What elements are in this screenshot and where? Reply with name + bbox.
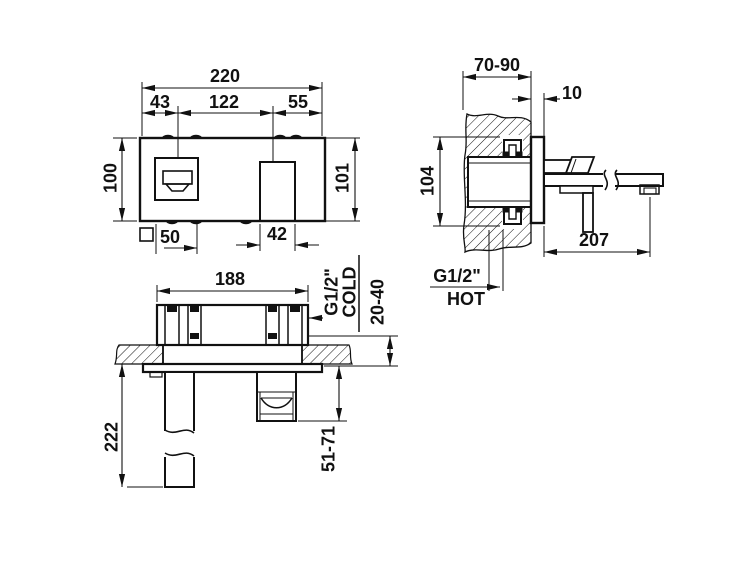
- handle-hub: [560, 186, 593, 193]
- mount-bump: [290, 135, 302, 138]
- label-thread-cold: G1/2": [322, 268, 342, 316]
- mount-bump: [166, 221, 178, 224]
- dim-front-height-left: 100: [101, 138, 123, 221]
- dim-handle-square: 50: [140, 227, 197, 248]
- label-thread-hot: G1/2": [433, 266, 481, 286]
- seal: [516, 207, 523, 213]
- square-symbol: [140, 228, 153, 241]
- top-view: 188 222 51-71 20-40 G1/2" COLD: [102, 255, 399, 487]
- dim-front-total: 220: [142, 66, 322, 88]
- dim-label-50: 50: [160, 227, 180, 247]
- front-view: 220 43 122 55 100 101: [101, 66, 361, 254]
- dim-label-220: 220: [210, 66, 240, 86]
- wall-band-right: [302, 345, 352, 364]
- seal: [190, 306, 199, 312]
- seal: [516, 152, 523, 158]
- seal: [268, 306, 277, 312]
- dim-spout-width: 42: [236, 224, 319, 245]
- dim-body-height: 104: [418, 137, 441, 226]
- dim-spout-drop: 222: [102, 364, 123, 487]
- wall-plate-top: [143, 364, 322, 372]
- seal: [503, 152, 510, 158]
- label-cold-inlet: G1/2" COLD: [309, 267, 360, 319]
- dim-label-10: 10: [562, 83, 582, 103]
- dim-plate-gap: 10: [512, 83, 582, 103]
- dim-label-104: 104: [418, 166, 438, 196]
- wall-band-left: [115, 345, 163, 364]
- mount-bump: [274, 135, 286, 138]
- dim-mount-depth: 20-40: [368, 279, 391, 366]
- dim-label-101: 101: [333, 163, 353, 193]
- side-view: 70-90 10 104 G1/2" HOT 207: [418, 55, 664, 309]
- seal: [503, 207, 510, 213]
- seal: [268, 333, 277, 339]
- aerator-inner: [644, 188, 656, 194]
- dim-spout-reach: 207: [544, 230, 650, 252]
- seal: [190, 333, 199, 339]
- dim-label-70-90: 70-90: [474, 55, 520, 75]
- dim-body-width: 188: [157, 269, 308, 291]
- faucet-installation-drawing: 220 43 122 55 100 101: [0, 0, 750, 563]
- label-cold: COLD: [340, 267, 360, 318]
- dim-label-42: 42: [267, 224, 287, 244]
- mount-bump: [190, 135, 202, 138]
- dim-label-207: 207: [579, 230, 609, 250]
- mount-bump: [190, 221, 202, 224]
- dim-label-222: 222: [102, 422, 122, 452]
- dim-label-188: 188: [215, 269, 245, 289]
- spout-top: [165, 372, 194, 487]
- drawing-svg: 220 43 122 55 100 101: [0, 0, 750, 563]
- dim-front-height-right: 101: [333, 138, 356, 221]
- wall-plate-side: [531, 137, 544, 223]
- mount-bump: [240, 221, 252, 224]
- dim-handle-range: 51-71: [319, 366, 340, 472]
- dim-label-43: 43: [150, 92, 170, 112]
- seal: [167, 306, 177, 312]
- dim-label-100: 100: [101, 163, 121, 193]
- handle-bar-side: [583, 193, 593, 232]
- label-hot: HOT: [447, 289, 485, 309]
- dim-wall-depth: 70-90: [463, 55, 531, 77]
- dim-label-55: 55: [288, 92, 308, 112]
- dim-label-51-71: 51-71: [319, 426, 339, 472]
- seal: [290, 306, 300, 312]
- dim-label-122: 122: [209, 92, 239, 112]
- rough-in-body: [468, 157, 531, 207]
- mount-bump: [162, 135, 174, 138]
- front-plate: [140, 138, 325, 221]
- dim-label-20-40: 20-40: [368, 279, 388, 325]
- dim-front-segments: 43 122 55: [142, 92, 322, 113]
- handle-lever-side: [566, 157, 594, 173]
